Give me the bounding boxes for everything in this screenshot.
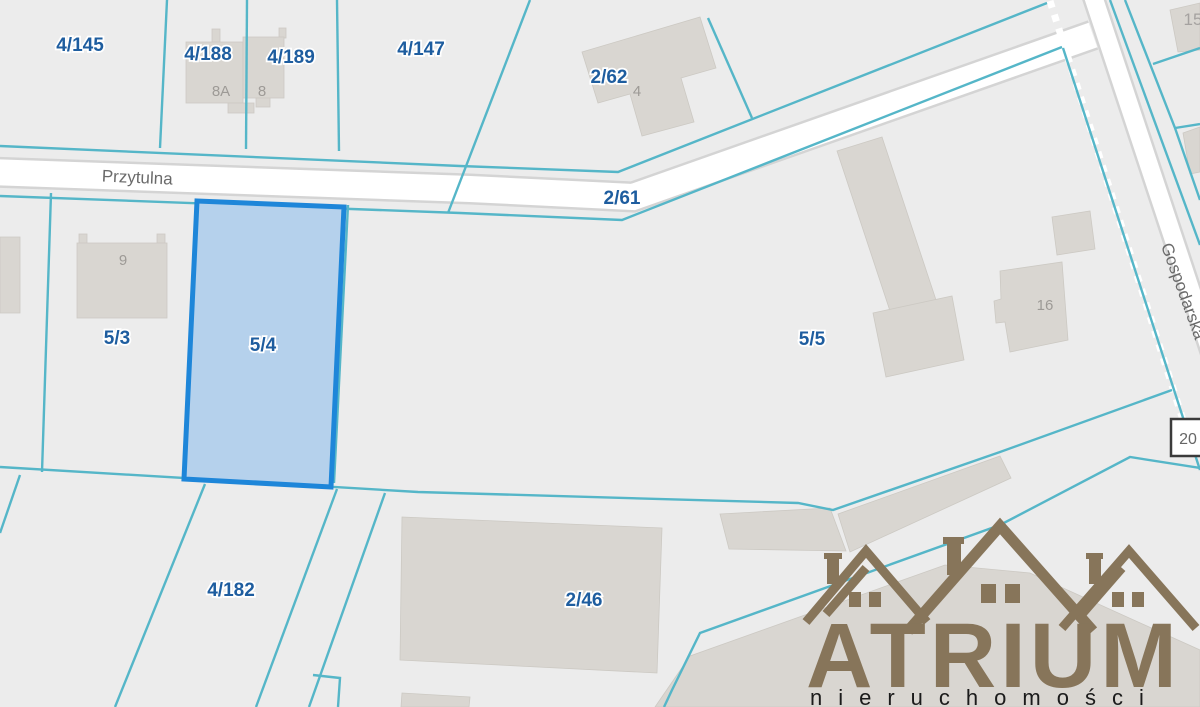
house-chimney-cap [824, 553, 842, 559]
parcel-label-4-147: 4/147 [397, 39, 445, 60]
parcel-label-4-189: 4/189 [267, 47, 315, 68]
house-chimney [1089, 558, 1101, 584]
building-number-4: 4 [633, 83, 641, 100]
building-number-20: 20 [1179, 431, 1197, 448]
building-number-9: 9 [119, 252, 127, 269]
map-canvas: 20 4/145 4/188 4/189 4/147 2/62 2/61 5/3… [0, 0, 1200, 707]
building-square-5-5 [1052, 211, 1095, 255]
building-chimney [79, 234, 87, 244]
cadastral-map[interactable]: 20 4/145 4/188 4/189 4/147 2/62 2/61 5/3… [0, 0, 1200, 707]
parcel-label-2-46: 2/46 [566, 590, 603, 611]
parcel-label-2-62: 2/62 [591, 67, 628, 88]
house-chimney [947, 543, 961, 575]
building-left-edge [0, 237, 20, 313]
building-number-16: 16 [1037, 297, 1054, 314]
building-2-46 [400, 517, 662, 673]
building-8a-annex [228, 103, 254, 113]
parcel-label-4-182: 4/182 [207, 580, 255, 601]
parcel-label-4-188: 4/188 [184, 44, 232, 65]
building-number-8a: 8A [212, 83, 230, 100]
parcel-label-5-4: 5/4 [250, 335, 277, 356]
building-chimney [157, 234, 165, 244]
house-chimney-cap [1086, 553, 1103, 559]
boundary-line [246, 0, 247, 149]
building-chimney [212, 29, 220, 43]
parcel-label-2-61: 2/61 [604, 188, 641, 209]
building-number-8: 8 [258, 83, 266, 100]
house-window [1005, 584, 1020, 603]
building-mid-south [720, 508, 846, 551]
street-label-przytulna: Przytulna [101, 166, 173, 188]
house-chimney [827, 558, 839, 584]
ref-box-20: 20 [1171, 419, 1200, 456]
building-chimney [279, 28, 286, 38]
building-number-15: 15 [1184, 10, 1200, 29]
brand-subtitle: nieruchomości [810, 685, 1160, 707]
house-chimney-cap [943, 537, 964, 544]
house-window [981, 584, 996, 603]
parcel-label-4-145: 4/145 [56, 35, 104, 56]
parcel-label-5-5: 5/5 [799, 329, 826, 350]
parcel-label-5-3: 5/3 [104, 328, 130, 349]
